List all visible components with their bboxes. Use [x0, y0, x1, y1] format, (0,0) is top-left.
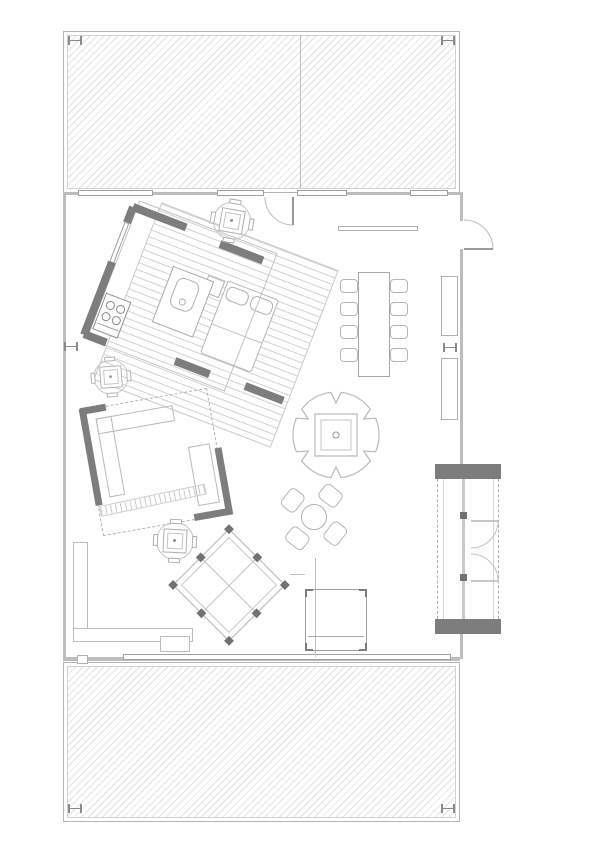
wall-shelf [441, 358, 458, 420]
window-segment [410, 190, 448, 196]
cafe-chair [107, 392, 118, 397]
dining-chair [390, 348, 408, 362]
right-wall [460, 633, 463, 659]
dining-chair [340, 279, 358, 293]
kitchen-island [152, 266, 215, 338]
closet-edge-line [493, 479, 494, 619]
burner [105, 300, 117, 312]
corner-marker [68, 804, 82, 813]
dining-chair [390, 302, 408, 316]
corner-marker [68, 36, 82, 45]
wall-shelf [441, 276, 458, 336]
dining-table [358, 272, 390, 377]
dining-chair [390, 325, 408, 339]
sideboard [338, 226, 418, 231]
upper-deck [63, 31, 460, 193]
dining-chair [340, 302, 358, 316]
burner [111, 315, 123, 327]
left-wall [63, 193, 66, 658]
bench-step [160, 636, 190, 652]
burner [100, 311, 112, 323]
cafe-chair [170, 519, 182, 525]
floor-plan [0, 0, 600, 848]
door-hinge-block [460, 574, 467, 581]
dining-chair [340, 348, 358, 362]
closet-edge-line [443, 479, 444, 619]
door-hinge-block [460, 512, 467, 519]
closet-dashed-edge [498, 479, 499, 619]
window-segment [217, 190, 264, 196]
lower-deck-hatch [67, 666, 456, 818]
right-wall [460, 249, 463, 465]
cafe-chair [126, 370, 131, 381]
wall-post-marker [77, 655, 88, 664]
dining-chair [390, 279, 408, 293]
burner [115, 304, 127, 316]
upper-deck-hatch [67, 35, 456, 189]
cabinet-bracket [359, 643, 367, 651]
cafe-chair [153, 534, 159, 546]
right-entry-door [464, 220, 493, 249]
window-band [123, 654, 451, 660]
closet-dashed-edge [437, 479, 438, 619]
wall-break-marker [443, 343, 457, 352]
dining-chair [340, 325, 358, 339]
cafe-table [207, 196, 258, 247]
window-segment [78, 190, 153, 196]
cafe-table [89, 355, 132, 398]
lower-deck [63, 662, 460, 822]
corner-marker [441, 804, 455, 813]
wall-break-marker [64, 342, 78, 351]
l-bench-vertical [73, 542, 88, 640]
cabinet-bracket [305, 643, 313, 651]
cafe-chair [168, 558, 180, 564]
cabinet-bracket [305, 589, 313, 597]
cafe-chair [90, 373, 95, 384]
cabinet-bracket [359, 589, 367, 597]
cabinet-tick [290, 574, 305, 575]
right-wall [460, 195, 463, 221]
sink [168, 276, 202, 314]
corner-marker [441, 36, 455, 45]
cafe-table-dot [173, 539, 176, 542]
upper-deck-seam [300, 35, 301, 189]
window-segment [297, 190, 347, 196]
cafe-chair [104, 356, 115, 361]
corner-cabinet [305, 589, 367, 651]
stair-closet [435, 464, 501, 636]
closet-center-wall [462, 479, 465, 619]
closet-cap-bottom [435, 619, 501, 634]
closet-cap-top [435, 464, 501, 479]
cabinet-shelf-line [308, 636, 364, 637]
cafe-table [152, 518, 198, 564]
cafe-chair [192, 536, 198, 548]
